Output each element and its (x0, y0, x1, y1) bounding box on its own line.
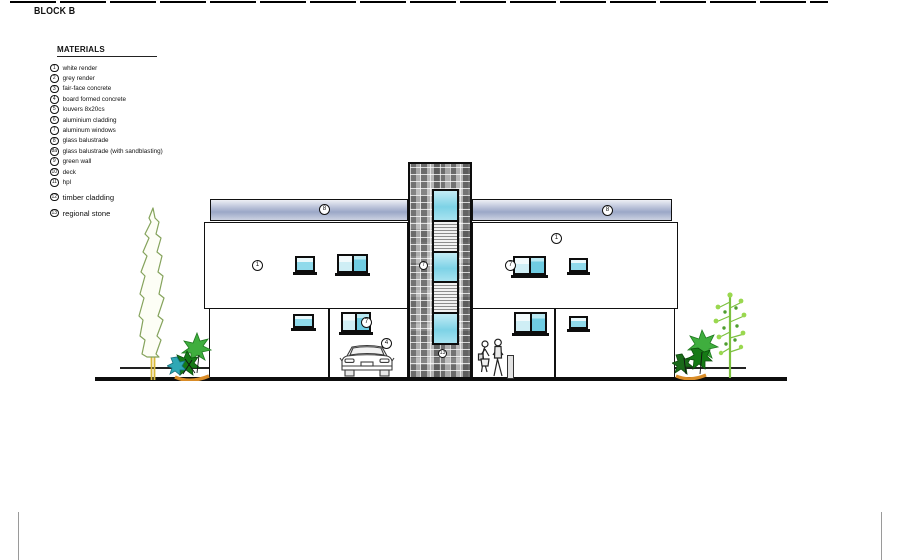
material-tag-wall-left: 1 (252, 260, 263, 271)
material-tag-window-lower-left: 7 (361, 317, 372, 328)
stone-tower (408, 162, 472, 380)
material-tag-window-upper-right: 7 (505, 260, 516, 271)
legend-item: 8 glass balustrade (50, 136, 240, 146)
wall-divider-right (554, 308, 556, 379)
legend-item-number: 7 (50, 126, 59, 135)
window-ground-right-single (569, 316, 588, 329)
window-pane (530, 314, 546, 331)
legend-item-number: 2 (50, 74, 59, 83)
legend-items: 1 white render 2 grey render 3 fair-face… (50, 63, 240, 220)
window-pane (515, 258, 529, 273)
window-pane (529, 258, 545, 273)
legend-item-label: white render (63, 65, 98, 72)
legend-item-label: regional stone (63, 209, 111, 218)
window-pane (571, 260, 586, 270)
tower-window-strip (432, 189, 459, 345)
drawing-sheet: BLOCK B MATERIALS 1 white render 2 grey … (0, 0, 900, 560)
tall-tree-right (708, 288, 752, 380)
shrubs-left (167, 329, 213, 381)
legend-item: 10 deck (50, 167, 240, 177)
sheet-top-rule (10, 1, 828, 3)
legend-item-number: 11 (50, 178, 59, 187)
legend-item: 2 grey render (50, 73, 240, 83)
legend-item-number: 13 (50, 209, 59, 218)
window-pane (516, 314, 530, 331)
legend-item-number: 8 (50, 137, 59, 146)
window-upper-left-double (337, 254, 368, 273)
tower-glass-panel (434, 312, 457, 343)
window-upper-left-single (295, 256, 315, 272)
window-pane (343, 314, 355, 330)
tower-glass-panel (434, 251, 457, 282)
tower-louver-panel (434, 281, 457, 312)
bollard (507, 355, 514, 379)
legend-item-label: green wall (63, 158, 92, 165)
legend-item-number: 12 (50, 193, 59, 202)
legend-item: 7 aluminum windows (50, 125, 240, 135)
material-tag-car: 4 (381, 338, 392, 349)
tower-louver-panel (434, 220, 457, 251)
legend-item: 1 white render (50, 63, 240, 73)
legend-item-label: glass balustrade (63, 137, 109, 144)
legend-item-number: 9 (50, 157, 59, 166)
legend-item: 8a glass balustrade (with sandblasting) (50, 146, 240, 156)
material-tag-wall-right: 1 (551, 233, 562, 244)
window-upper-right-double (513, 256, 546, 275)
material-tag-band-left: 8 (319, 204, 330, 215)
tower-glass-panel (434, 191, 457, 220)
wall-divider-left (328, 308, 330, 379)
legend-item-number: 10 (50, 168, 59, 177)
window-pane (352, 256, 367, 271)
legend-item-number: 8a (50, 147, 59, 156)
legend-item-label: deck (63, 169, 76, 176)
legend-item-label: aluminium cladding (63, 117, 117, 124)
window-pane (295, 316, 312, 326)
people-figures (476, 338, 510, 380)
window-pane (571, 318, 586, 327)
legend-item: 4 board formed concrete (50, 94, 240, 104)
legend-item-label: glass balustrade (with sandblasting) (63, 148, 163, 155)
window-pane (339, 256, 352, 271)
legend-item: 5 louvers 8x20cs (50, 105, 240, 115)
legend-item-label: louvers 8x20cs (63, 106, 105, 113)
page-title: BLOCK B (34, 6, 75, 17)
material-tag-band-right: 8 (602, 205, 613, 216)
legend-item: 3 fair-face concrete (50, 84, 240, 94)
roof-balustrade-left (210, 199, 408, 221)
legend-item-label: grey render (63, 75, 95, 82)
legend-item-label: hpl (63, 179, 71, 186)
legend-item-label: aluminum windows (63, 127, 116, 134)
material-tag-tower-window: 7 (419, 261, 428, 270)
roof-balustrade-right (472, 199, 672, 221)
legend-item: 9 green wall (50, 157, 240, 167)
legend-item-label: fair-face concrete (63, 85, 112, 92)
sheet-frame-right (881, 512, 882, 560)
window-ground-right-double (514, 312, 547, 333)
material-tag-tower-base: 13 (438, 349, 447, 358)
legend-item-number: 1 (50, 64, 59, 73)
window-pane (297, 258, 313, 270)
legend-item: 6 aluminium cladding (50, 115, 240, 125)
sheet-frame-left (18, 512, 19, 560)
legend-item-number: 3 (50, 85, 59, 94)
legend-item-number: 6 (50, 116, 59, 125)
legend-item-label: timber cladding (63, 193, 115, 202)
legend-item-label: board formed concrete (63, 96, 126, 103)
window-ground-left-single (293, 314, 314, 328)
legend-item: 11 hpl (50, 177, 240, 187)
legend-title: MATERIALS (57, 45, 157, 57)
window-upper-right-single (569, 258, 588, 272)
legend-item-number: 5 (50, 105, 59, 114)
legend-item-number: 4 (50, 95, 59, 104)
